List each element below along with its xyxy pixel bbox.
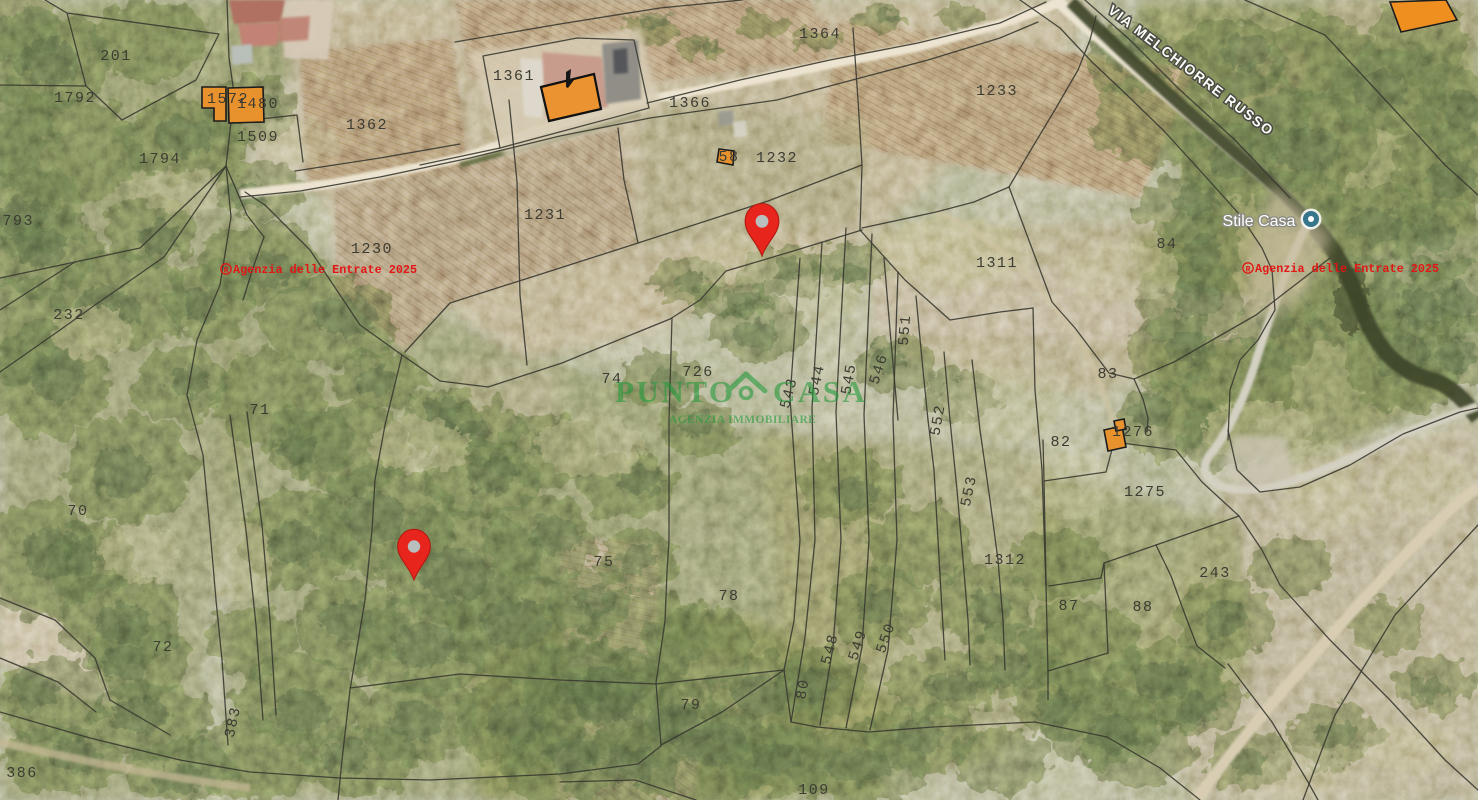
svg-text:1232: 1232: [756, 150, 798, 167]
svg-text:Agenzia delle Entrate 2025: Agenzia delle Entrate 2025: [1255, 262, 1439, 276]
svg-text:1480: 1480: [237, 96, 279, 113]
svg-text:1362: 1362: [346, 117, 388, 134]
svg-text:83: 83: [1097, 366, 1118, 383]
svg-text:75: 75: [593, 554, 614, 571]
svg-text:CASA: CASA: [773, 374, 867, 409]
svg-text:1366: 1366: [669, 95, 711, 112]
svg-text:1312: 1312: [984, 552, 1026, 569]
svg-text:1794: 1794: [139, 151, 181, 168]
svg-text:201: 201: [100, 48, 132, 65]
svg-text:82: 82: [1050, 434, 1071, 451]
svg-text:78: 78: [718, 588, 739, 605]
svg-text:R: R: [1246, 266, 1251, 275]
svg-text:1230: 1230: [351, 241, 393, 258]
svg-text:84: 84: [1156, 236, 1177, 253]
svg-text:PUNTO: PUNTO: [615, 374, 735, 409]
svg-text:232: 232: [53, 307, 85, 324]
svg-text:80: 80: [793, 677, 813, 701]
svg-text:1233: 1233: [976, 83, 1018, 100]
svg-text:Agenzia delle Entrate 2025: Agenzia delle Entrate 2025: [233, 263, 417, 277]
svg-text:Stile Casa: Stile Casa: [1223, 213, 1296, 230]
svg-text:71: 71: [249, 402, 270, 419]
svg-text:243: 243: [1199, 565, 1231, 582]
svg-text:72: 72: [152, 639, 173, 656]
svg-text:1364: 1364: [799, 26, 841, 43]
svg-text:1276: 1276: [1112, 424, 1154, 441]
svg-text:109: 109: [798, 782, 830, 799]
svg-text:87: 87: [1058, 598, 1079, 615]
svg-text:1793: 1793: [0, 213, 34, 230]
svg-text:R: R: [224, 267, 229, 276]
svg-text:386: 386: [6, 765, 38, 782]
svg-text:1509: 1509: [237, 129, 279, 146]
svg-text:1311: 1311: [976, 255, 1018, 272]
svg-text:AGENZIA IMMOBILIARE: AGENZIA IMMOBILIARE: [669, 414, 816, 426]
svg-text:1275: 1275: [1124, 484, 1166, 501]
svg-text:58: 58: [718, 149, 739, 166]
svg-text:70: 70: [67, 503, 88, 520]
svg-text:1361: 1361: [493, 68, 535, 85]
svg-text:1231: 1231: [524, 207, 566, 224]
svg-text:551: 551: [896, 314, 916, 347]
svg-text:79: 79: [680, 697, 701, 714]
svg-text:88: 88: [1132, 599, 1153, 616]
svg-text:1792: 1792: [54, 90, 96, 107]
